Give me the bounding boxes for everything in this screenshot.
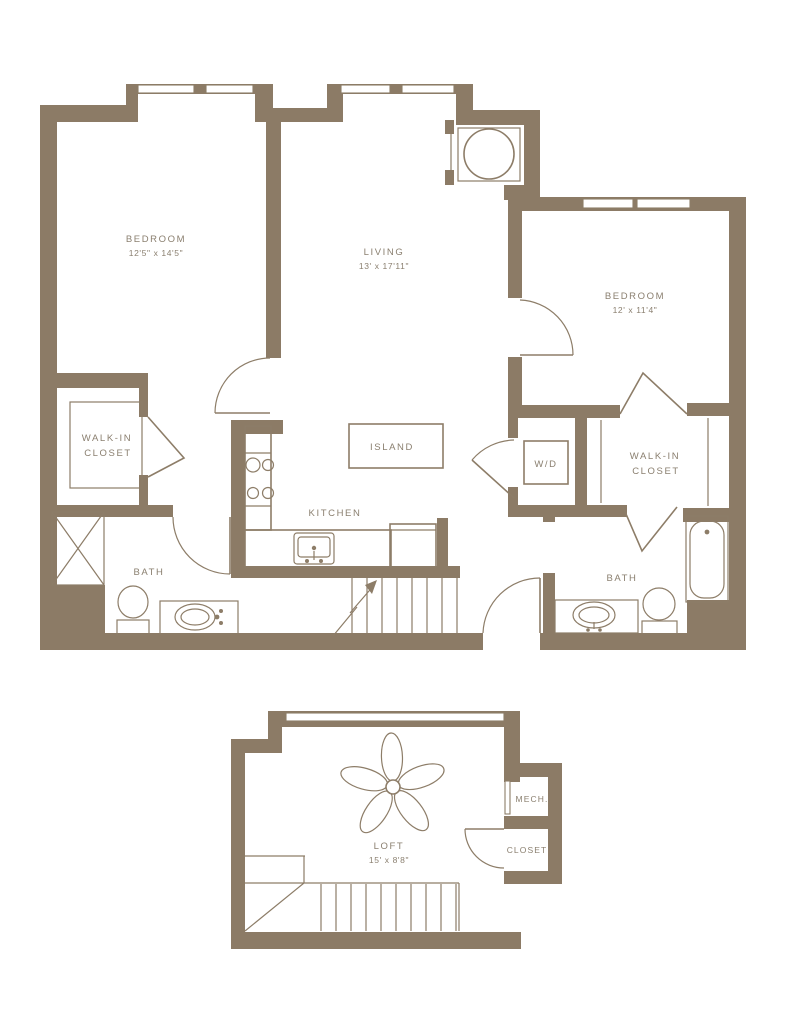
stove: [246, 458, 274, 499]
walk-in-closet2-label-line1: WALK-IN: [630, 451, 680, 462]
bedroom2-window-left: [583, 199, 633, 208]
bedroom1-label: BEDROOM: [126, 234, 186, 245]
bedroom2-door: [520, 300, 573, 355]
walk-in-closet2-label-line2: CLOSET: [632, 466, 680, 477]
bedroom1-dimensions: 12'5" x 14'5": [129, 248, 183, 258]
loft-dimensions: 15' x 8'8": [369, 855, 409, 865]
bath2-label: BATH: [606, 573, 637, 584]
bath1-label: BATH: [133, 567, 164, 578]
washer-dryer-label: W/D: [534, 459, 557, 470]
floorplan-canvas: BEDROOM 12'5" x 14'5" LIVING 13' x 17'11…: [0, 0, 791, 1024]
loft-closet-door: [465, 829, 504, 868]
living-window-left: [341, 85, 390, 93]
walk-in-closet1-outline: [70, 402, 142, 488]
living-dimensions: 13' x 17'11": [359, 261, 409, 271]
water-heater-chase: [451, 128, 520, 181]
floorplan-page: BEDROOM 12'5" x 14'5" LIVING 13' x 17'11…: [0, 0, 791, 1024]
bedroom1-door: [215, 358, 270, 413]
walk-in-closet1-door: [148, 417, 184, 477]
mech-door: [505, 781, 510, 814]
stair-direction-arrow: [333, 584, 375, 636]
entry-door: [483, 578, 540, 633]
kitchen-label: KITCHEN: [309, 508, 362, 519]
loft-label: LOFT: [374, 841, 405, 852]
washer-dryer-door: [472, 440, 514, 498]
walk-in-closet2-edges: [601, 418, 708, 506]
bedroom2-window-right: [637, 199, 690, 208]
bedroom2-label: BEDROOM: [605, 291, 665, 302]
walk-in-closet1-label-line2: CLOSET: [84, 448, 132, 459]
living-label: LIVING: [364, 247, 405, 258]
loft-closet-label: CLOSET: [507, 845, 548, 855]
kitchen-peninsula: [245, 530, 391, 567]
bedroom1-window-right: [206, 85, 253, 93]
bedroom2-dimensions: 12' x 11'4": [613, 305, 658, 315]
loft-window: [286, 713, 504, 721]
loft-stairs: [245, 856, 459, 931]
mech-label: MECH.: [516, 794, 549, 804]
bathtub: [686, 516, 728, 602]
shaft-x-box: [52, 512, 104, 585]
bath2-vanity: [555, 600, 638, 633]
walk-in-closet1-label-line1: WALK-IN: [82, 433, 132, 444]
kitchen-counter: [245, 426, 271, 530]
bath1-vanity: [160, 601, 238, 634]
living-window-right: [402, 85, 454, 93]
bath1-toilet: [117, 586, 149, 635]
loft-level-plan: LOFT 15' x 8'8" MECH. CLOSET: [231, 711, 562, 949]
fridge: [390, 524, 436, 567]
main-level-plan: BEDROOM 12'5" x 14'5" LIVING 13' x 17'11…: [40, 84, 746, 650]
main-level-walls: [40, 84, 746, 650]
kitchen-sink: [294, 533, 334, 564]
island-label: ISLAND: [370, 442, 414, 453]
main-stairs: [333, 578, 457, 636]
bedroom1-window-left: [138, 85, 194, 93]
walk-in-closet2-door-bedroom: [620, 373, 687, 414]
walk-in-closet2-door-bath: [623, 507, 677, 551]
ceiling-fan: [338, 733, 447, 838]
bath2-toilet: [642, 588, 677, 634]
bath1-door: [173, 517, 230, 574]
